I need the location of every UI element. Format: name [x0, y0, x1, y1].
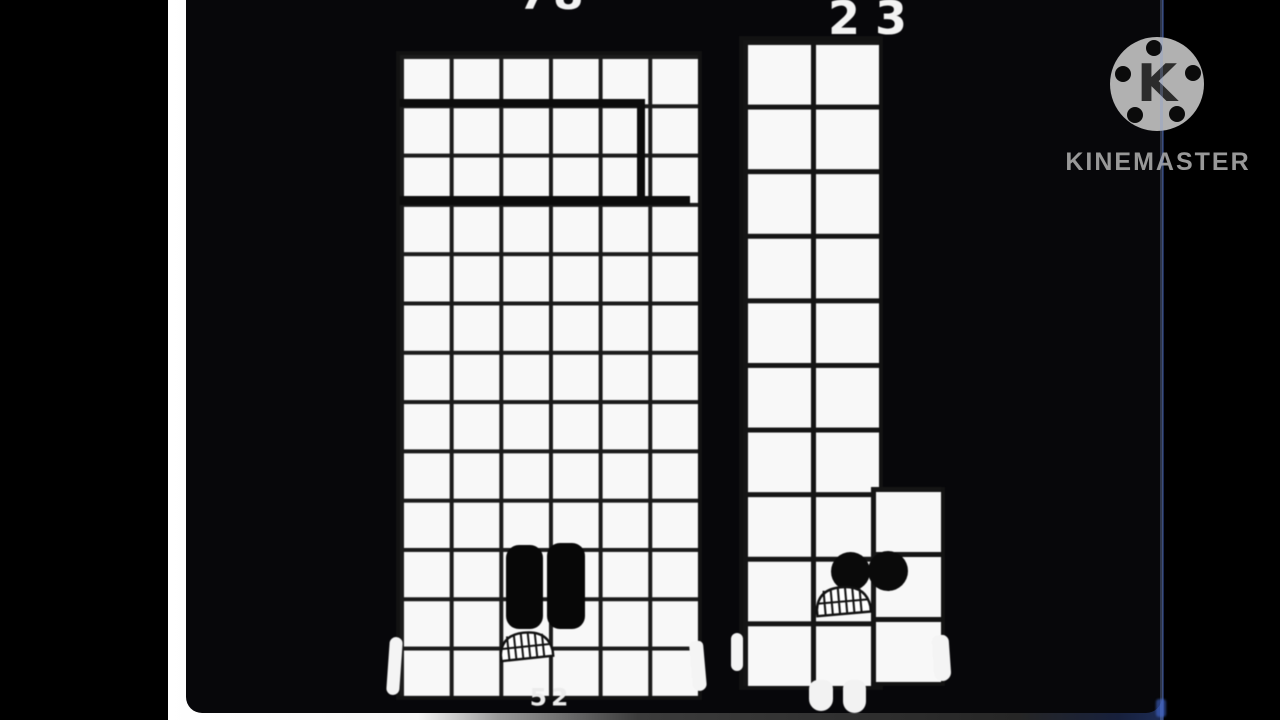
numberblock-23-left-arm [731, 633, 743, 671]
numberblock-78-right-eye-icon [547, 543, 585, 629]
numberblock-23-mouth-icon [813, 582, 874, 620]
ten-marker-bottom [400, 196, 690, 205]
numberblock-23-right-eye-icon [868, 551, 908, 591]
numberblock-78-left-eye-icon [506, 545, 543, 629]
video-frame[interactable]: 78 23 52 K KINEMASTER [0, 0, 1280, 720]
numberblock-23-label: 23 [800, 0, 950, 44]
animation-layer: 78 23 52 [0, 0, 1280, 720]
numberblock-78-right-arm [689, 640, 707, 691]
numberblock-23-left-foot [809, 680, 833, 711]
video-edge-line [1160, 0, 1163, 720]
numberblock-23-right-hand [931, 634, 951, 681]
ten-marker-right [637, 99, 645, 205]
logo-reel-dot-icon [1115, 66, 1131, 82]
numberblock-78-label: 78 [503, 0, 603, 20]
numberblock-23-right-foot [843, 680, 866, 713]
kinemaster-watermark-text: KINEMASTER [1063, 148, 1253, 177]
logo-reel-dot-icon [1169, 106, 1185, 122]
numberblock-78-bottom-label: 52 [514, 685, 588, 712]
logo-reel-dot-icon [1185, 65, 1201, 81]
logo-reel-dot-icon [1127, 107, 1143, 123]
video-edge-corner-glow [1156, 699, 1166, 717]
ten-marker-top [400, 99, 645, 107]
numberblock-78-mouth-icon [496, 626, 555, 665]
